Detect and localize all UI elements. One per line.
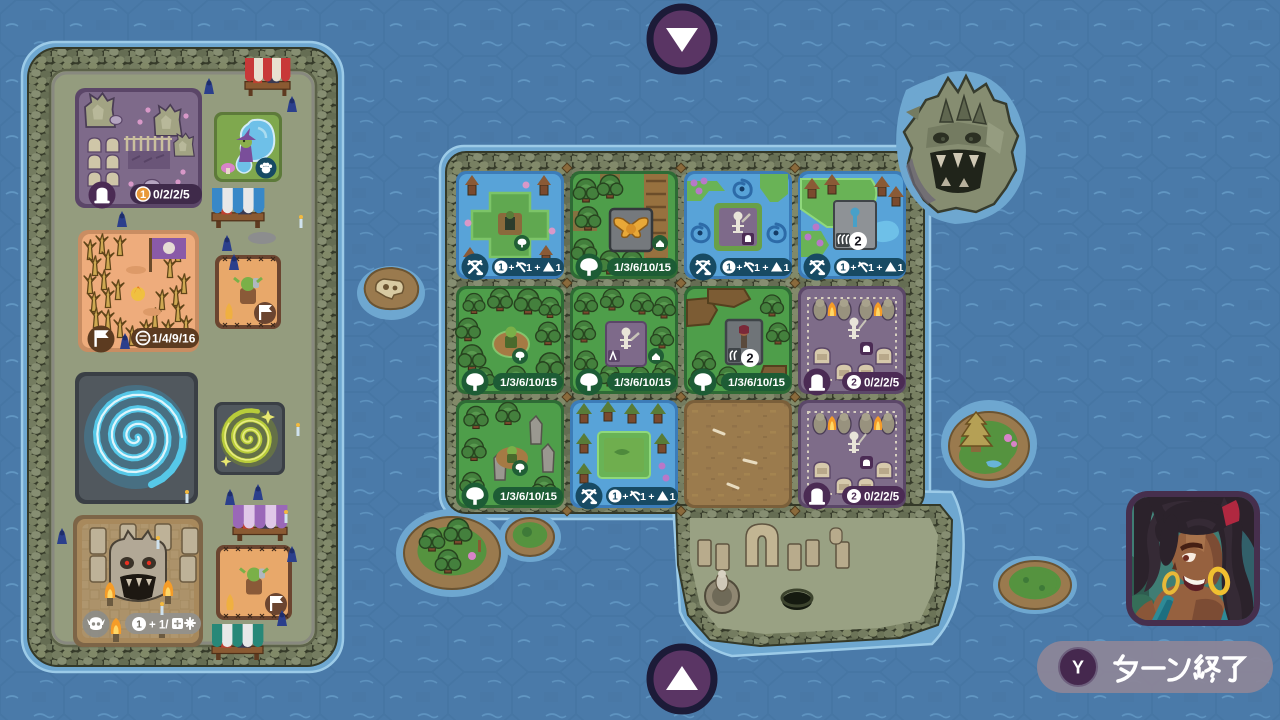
svg-text:1/3/6/10/15: 1/3/6/10/15 — [500, 491, 558, 503]
svg-text:+: + — [762, 262, 768, 274]
svg-text:2: 2 — [851, 378, 857, 389]
svg-text:1: 1 — [526, 262, 532, 274]
svg-text:+: + — [508, 262, 514, 274]
svg-text:+: + — [850, 262, 856, 274]
svg-text:0/2/2/5: 0/2/2/5 — [153, 188, 190, 202]
svg-text:1: 1 — [726, 263, 732, 274]
svg-text:+: + — [622, 491, 628, 503]
svg-text:0/2/2/5: 0/2/2/5 — [864, 378, 900, 390]
svg-text:1: 1 — [784, 262, 790, 274]
svg-text:2: 2 — [746, 351, 753, 366]
svg-text:0/2/2/5: 0/2/2/5 — [864, 492, 900, 504]
svg-text:+ 1/: + 1/ — [149, 620, 169, 632]
svg-text:1: 1 — [612, 492, 618, 503]
svg-text:1: 1 — [670, 491, 676, 503]
svg-text:1: 1 — [898, 262, 904, 274]
svg-text:1/4/9/16: 1/4/9/16 — [152, 332, 196, 346]
svg-text:1: 1 — [136, 620, 142, 631]
svg-text:1: 1 — [556, 262, 562, 274]
svg-text:1/3/6/10/15: 1/3/6/10/15 — [500, 377, 558, 389]
svg-text:2: 2 — [851, 492, 857, 503]
svg-text:+: + — [534, 262, 540, 274]
svg-text:1: 1 — [640, 491, 646, 503]
svg-text:+: + — [876, 262, 882, 274]
svg-text:1: 1 — [498, 263, 504, 274]
svg-text:1: 1 — [140, 189, 146, 201]
svg-text:1: 1 — [868, 262, 874, 274]
svg-text:1: 1 — [754, 262, 760, 274]
svg-text:+: + — [648, 491, 654, 503]
svg-text:1/3/6/10/15: 1/3/6/10/15 — [614, 377, 672, 389]
svg-text:Y: Y — [1072, 658, 1084, 678]
svg-text:1/3/6/10/15: 1/3/6/10/15 — [614, 262, 672, 274]
svg-text:1: 1 — [840, 263, 846, 274]
svg-text:1/3/6/10/15: 1/3/6/10/15 — [728, 377, 786, 389]
svg-text:2: 2 — [854, 234, 861, 249]
svg-text:+: + — [736, 262, 742, 274]
